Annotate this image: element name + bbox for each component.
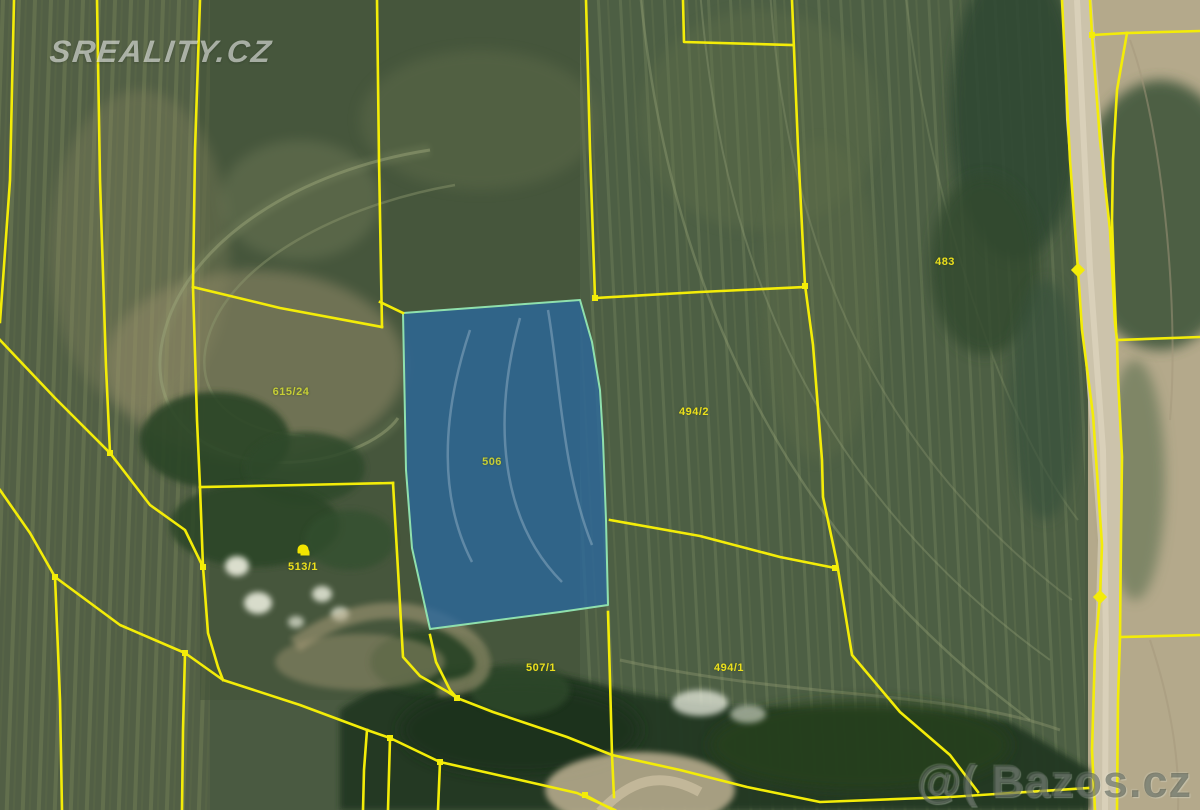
boundary-right-horizontal-mid [1117, 337, 1200, 340]
boundary-junction-node [107, 450, 113, 456]
boundary-top-mid-vertical [586, 0, 595, 298]
boundary-fourth-vertical [377, 0, 382, 327]
boundary-junction-node [182, 650, 188, 656]
boundary-horizontal-above-blue [595, 287, 805, 298]
boundary-junction-node [387, 735, 393, 741]
boundary-drop-5 [438, 762, 440, 810]
boundary-junction-node [200, 564, 206, 570]
boundary-third-vertical [193, 0, 200, 487]
boundary-junction-node [802, 283, 808, 289]
boundary-mid-vertical-507-494 [608, 612, 614, 797]
boundary-grove-left-curve [200, 487, 223, 680]
boundary-link-to-blue-corner [380, 302, 403, 313]
boundary-right-horizontal-low [1120, 635, 1200, 637]
bazos-watermark: @( Bazos.cz [917, 756, 1192, 808]
boundary-road-right-parallel [1112, 33, 1127, 330]
boundary-link-blue-to-right [610, 520, 835, 568]
boundary-junction-node [832, 565, 838, 571]
boundary-diagonal-upper-left [0, 340, 110, 453]
parcel-boundary-layer [0, 0, 1200, 810]
boundary-junction-node [592, 295, 598, 301]
boundary-road-top-connector [1092, 33, 1127, 35]
sreality-watermark: SREALITY.CZ [48, 34, 275, 70]
boundary-junction-node [582, 792, 588, 798]
boundary-right-field-vertical [792, 0, 805, 285]
boundary-junction-node [437, 759, 443, 765]
boundary-junction-node [52, 574, 58, 580]
boundary-left-edge-line [0, 0, 14, 322]
boundary-road-left-edge [1062, 0, 1102, 810]
boundary-drop-3 [363, 730, 367, 810]
highlighted-parcel-506 [403, 300, 608, 629]
boundary-cross-diagonal [193, 287, 382, 327]
boundary-long-right-diagonal [805, 285, 978, 792]
boundary-junction-node [1089, 32, 1095, 38]
boundary-drop-2 [182, 653, 185, 810]
boundary-top-stub-connector [683, 0, 792, 45]
boundary-right-horizontal-top [1127, 31, 1200, 33]
boundary-diagonal-to-grove [110, 453, 203, 567]
boundary-junction-node [454, 695, 460, 701]
survey-marker [1071, 263, 1085, 277]
boundary-small-branch [585, 795, 613, 810]
survey-marker [1093, 590, 1107, 604]
boundary-drop-1 [55, 577, 62, 810]
boundary-grove-top-edge [200, 483, 393, 487]
boundary-drop-4 [388, 738, 390, 810]
cadastral-map-screenshot: 483494/2506615/24513/1507/1494/1 SREALIT… [0, 0, 1200, 810]
